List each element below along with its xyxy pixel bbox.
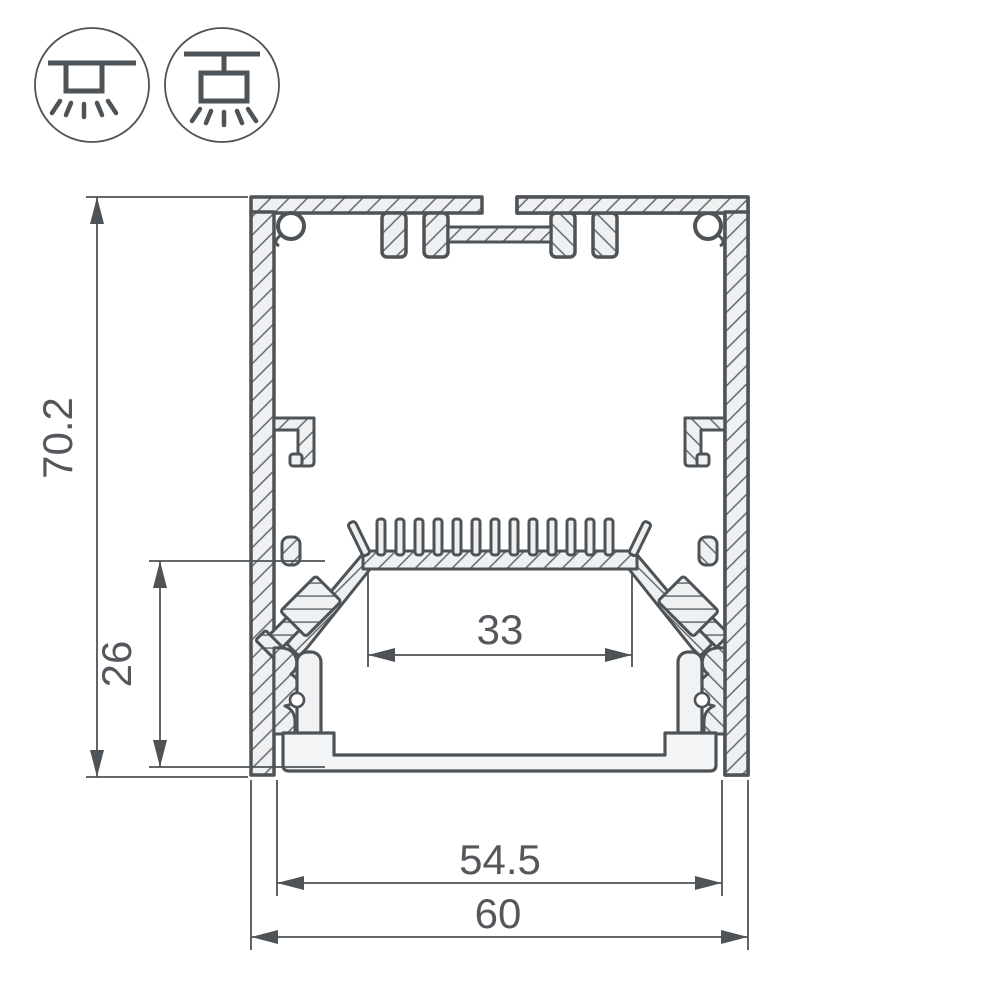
light-rays xyxy=(192,109,256,125)
dimension-label-led-platform-width: 33 xyxy=(477,606,524,653)
dimension-label-overall-height: 70.2 xyxy=(34,397,81,479)
technical-drawing-page: 70.2 26 33 54.5 xyxy=(0,0,1000,1000)
mount-type-icons xyxy=(35,28,279,142)
dimension-label-overall-width: 60 xyxy=(475,890,522,937)
profile-cross-section xyxy=(251,197,748,775)
pendant-mount-icon xyxy=(165,28,279,142)
profile-technical-drawing: 70.2 26 33 54.5 xyxy=(0,0,1000,1000)
dimension-label-inner-height: 26 xyxy=(93,641,140,688)
profile-left-half xyxy=(251,197,482,775)
dimension-label-inner-width: 54.5 xyxy=(459,836,541,883)
profile-right-half xyxy=(517,197,748,775)
diffuser-cover xyxy=(283,733,716,771)
t-slot-plate xyxy=(448,227,551,242)
surface-mount-icon xyxy=(35,28,149,142)
dimension-overall-height: 70.2 xyxy=(34,197,248,777)
dimension-led-platform-width: 33 xyxy=(368,572,632,667)
screw-port-icon xyxy=(278,213,304,239)
heatsink-platform xyxy=(348,519,652,569)
dimension-inner-width: 54.5 xyxy=(277,780,722,896)
light-rays xyxy=(52,101,116,117)
